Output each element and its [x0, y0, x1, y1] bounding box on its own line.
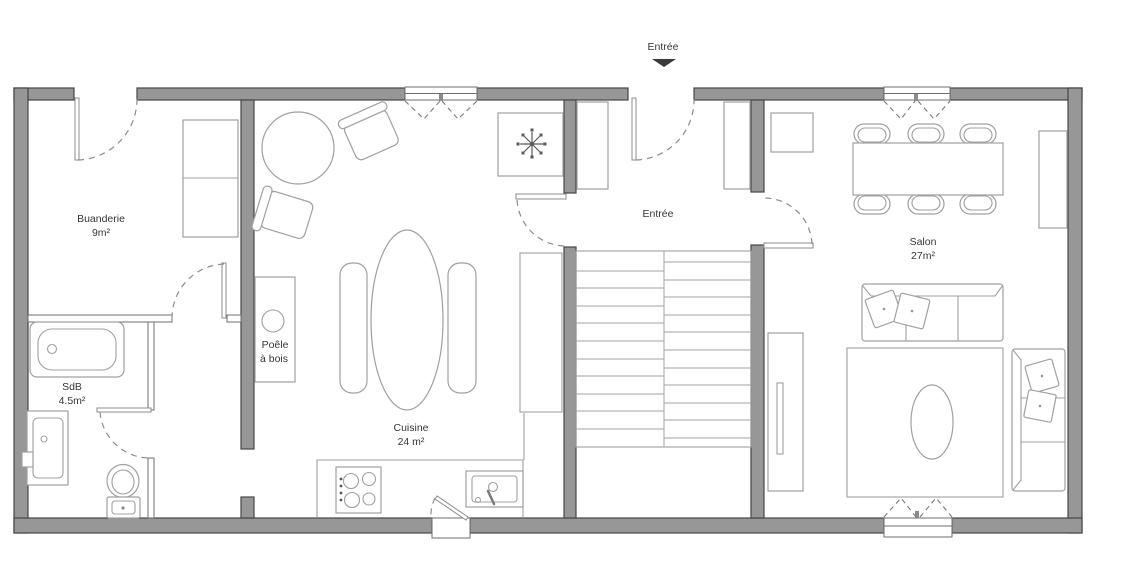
armchair [251, 185, 315, 244]
wood-stove: Poêle à bois [255, 277, 295, 382]
entry-closet [577, 102, 608, 189]
armchair [337, 101, 403, 163]
window-cuisine [405, 87, 477, 119]
room-name: Cuisine [393, 422, 428, 434]
sofa [862, 284, 1003, 341]
room-label-entree: Entrée [643, 208, 674, 220]
floor-plan: Entrée [0, 0, 1146, 575]
window-salon-bottom [884, 498, 952, 537]
bathroom-vanity [22, 411, 68, 485]
door-buanderie-exterior [75, 98, 137, 160]
dining-chair [854, 124, 890, 144]
room-area: 4.5m² [59, 395, 86, 407]
wood-stove-label-line1: Poêle [262, 339, 289, 351]
side-table [771, 113, 813, 152]
dining-chair [908, 194, 944, 214]
cushion [1024, 390, 1057, 423]
entrance-label: Entrée [648, 41, 679, 53]
chaise-sofa [1012, 349, 1065, 491]
room-name: Entrée [643, 208, 674, 220]
door-buanderie-hall [172, 263, 226, 318]
wall-stair-left [564, 247, 576, 518]
entrance-arrow-icon [652, 59, 676, 67]
round-table [262, 112, 334, 184]
fridge-marker [498, 113, 563, 176]
dining-chair [854, 194, 890, 214]
room-label-sdb: SdB 4.5m² [59, 381, 86, 407]
wall-entree-salon [751, 100, 764, 192]
room-name: Salon [910, 236, 937, 248]
door-cuisine-back [431, 496, 470, 538]
wall-buanderie-cuisine [241, 100, 254, 449]
cooktop [336, 467, 381, 513]
window-salon-top [884, 87, 950, 119]
wall-stair-right [751, 245, 764, 518]
floor-plan-canvas: Entrée [0, 0, 1146, 575]
entry-closet [724, 102, 750, 189]
radiator [1039, 131, 1067, 228]
cabinet [768, 333, 803, 491]
dining-table [853, 143, 1003, 195]
toilet [107, 465, 140, 519]
kitchen-sink [466, 471, 523, 507]
room-area: 24 m² [398, 436, 425, 448]
coffee-table [911, 385, 953, 459]
shelf [22, 452, 33, 467]
cushion [894, 293, 930, 329]
dining-chair [908, 124, 944, 144]
washer-dryer-stack [183, 120, 238, 237]
door-entree-salon [764, 198, 813, 248]
kitchen-bench [448, 263, 476, 393]
room-label-salon: Salon 27m² [910, 236, 937, 262]
room-area: 27m² [911, 250, 935, 262]
wall-cuisine-entree [564, 100, 576, 193]
wood-stove-label-line2: à bois [260, 353, 288, 365]
dining-chair [960, 194, 996, 214]
room-name: Buanderie [77, 213, 125, 225]
kitchen-bench [340, 263, 367, 393]
door-sdb [97, 408, 151, 458]
door-cuisine-entree [516, 194, 566, 246]
dining-set [853, 124, 1003, 214]
room-label-buanderie: Buanderie 9m² [77, 213, 125, 239]
room-label-cuisine: Cuisine 24 m² [393, 422, 428, 448]
room-name: SdB [62, 381, 82, 393]
dining-chair [960, 124, 996, 144]
bathtub [30, 322, 124, 377]
room-area: 9m² [92, 227, 111, 239]
kitchen-oval-table [371, 230, 443, 410]
staircase [576, 251, 751, 447]
entrance-marker: Entrée [648, 41, 679, 67]
door-front-entrance [632, 98, 694, 160]
